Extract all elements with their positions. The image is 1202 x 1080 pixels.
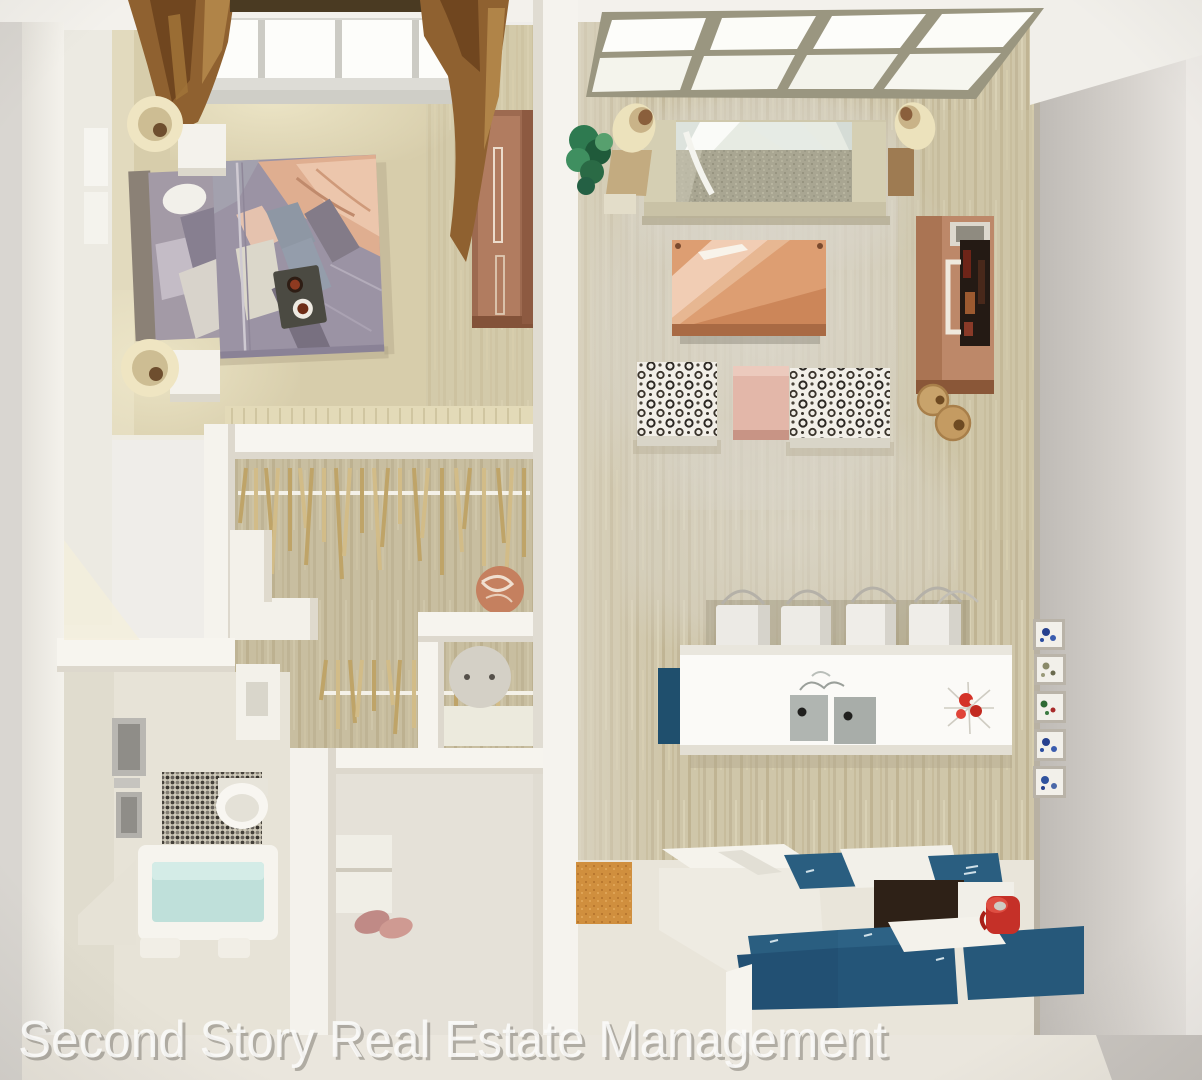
svg-text:Second Story Real Estate Manag: Second Story Real Estate Management — [18, 1011, 888, 1069]
